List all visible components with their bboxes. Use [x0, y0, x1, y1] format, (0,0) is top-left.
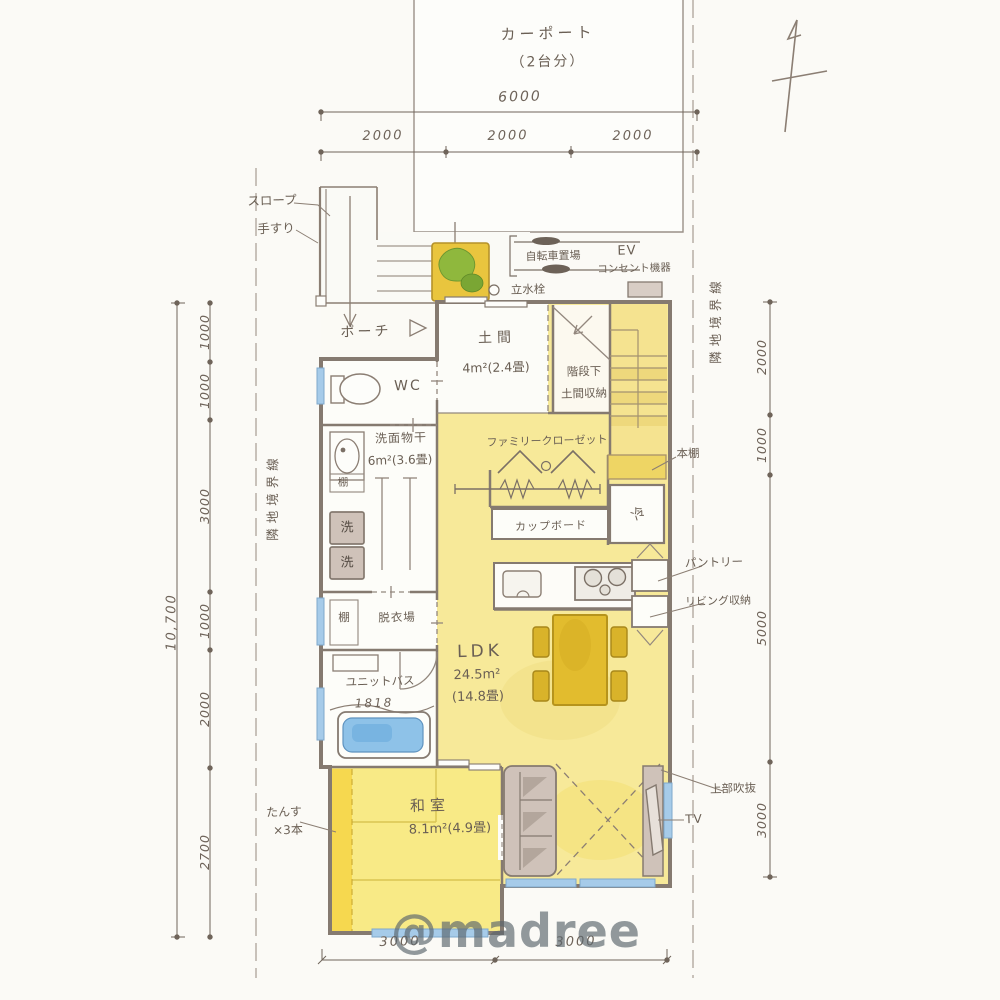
kitchen	[494, 563, 635, 609]
tansu-label-1: たんす	[266, 806, 302, 819]
dim-right-seg: 3000	[756, 802, 769, 838]
washroom-label: 洗面物干	[375, 431, 427, 444]
window	[317, 368, 324, 404]
chair	[611, 627, 627, 657]
standpipe-icon	[489, 285, 499, 295]
family-closet-label: ファミリークローゼット	[486, 434, 607, 448]
chair	[533, 671, 549, 701]
dim-top-seg: 2000	[487, 129, 528, 143]
floor-plan-canvas: カーポート （2台分） 6000 2000 2000 2000 スロープ 手すり…	[0, 0, 1000, 1000]
dim-left-seg: 1000	[199, 603, 212, 639]
kitchen-sink	[503, 571, 541, 597]
dim-left-seg: 3000	[199, 488, 212, 524]
standpipe-label: 立水栓	[511, 284, 546, 296]
dim-right-seg: 1000	[756, 427, 769, 463]
ramp-floor	[320, 187, 377, 303]
window	[506, 879, 576, 887]
unit-bath-label: ユニットバス	[345, 675, 414, 688]
living-storage-box	[632, 596, 668, 627]
toilet-bowl	[340, 374, 380, 404]
dim-left-total: 10,700	[166, 593, 179, 651]
window	[664, 783, 672, 838]
chair	[611, 671, 627, 701]
tansu-strip	[332, 769, 352, 933]
washitsu-area-label: 8.1m²(4.9畳)	[409, 821, 492, 836]
ev-outlet-box	[628, 282, 662, 297]
doma-label: 土間	[478, 331, 516, 346]
dim-left-seg: 2000	[199, 691, 212, 727]
watermark: @madree	[391, 904, 641, 958]
dim-right-seg: 5000	[756, 610, 769, 646]
carport-capacity: （2台分）	[510, 54, 585, 70]
shelf-upper-label: 棚	[338, 478, 349, 489]
handrail-post	[316, 296, 326, 306]
planter	[432, 243, 489, 301]
window	[580, 879, 655, 887]
dim-left-seg: 2700	[199, 834, 212, 870]
bicycle-icon	[542, 265, 570, 274]
window	[317, 598, 324, 645]
dim-right-seg: 2000	[756, 339, 769, 375]
doma-area-label: 4m²(2.4畳)	[462, 361, 530, 375]
dim-left-seg: 1000	[199, 314, 212, 350]
understairs-label-1: 階段下	[567, 366, 602, 378]
ldk-tatami-label: (14.8畳)	[452, 690, 504, 704]
dim-top-seg: 2000	[362, 129, 403, 143]
handrail-label: 手すり	[257, 222, 295, 235]
dim-top-seg: 2000	[612, 129, 653, 143]
wc-fixtures	[331, 374, 380, 404]
tv-label: TV	[685, 813, 703, 825]
understairs-label-2: 土間収納	[561, 388, 607, 401]
tansu-label-2: ×3本	[273, 824, 303, 837]
ldk-area-label: 24.5m²	[453, 668, 500, 682]
room-fills	[320, 187, 670, 935]
floor-plan-drawing	[0, 0, 1000, 1000]
ev-label: EV	[617, 244, 636, 257]
ldk-label: LDK	[457, 643, 503, 661]
boundary-left-label: 隣地境界線	[267, 453, 280, 541]
bookshelf-label: 本棚	[676, 448, 699, 460]
slope-label: スロープ	[247, 194, 297, 208]
north-arrow-icon	[772, 20, 827, 132]
porch-label: ポーチ	[340, 324, 391, 339]
chair	[533, 627, 549, 657]
washitsu-label: 和室	[410, 798, 450, 814]
boundary-right-label: 隣地境界線	[710, 276, 723, 364]
window	[317, 688, 324, 740]
carport-label: カーポート	[500, 25, 595, 42]
burner	[600, 585, 610, 595]
washroom-area-label: 6m²(3.6畳)	[368, 453, 433, 467]
dim-top-total: 6000	[498, 89, 542, 104]
wc-label: WC	[394, 379, 422, 394]
bicycle-icon	[532, 237, 560, 245]
shelf-lower-label: 棚	[338, 612, 350, 624]
dressing-room-label: 脱衣場	[378, 612, 416, 624]
bicycle-parking-label: 自転車置場	[525, 250, 580, 262]
pantry-label: パントリー	[685, 556, 743, 569]
dim-left-seg: 1000	[199, 373, 212, 409]
burner	[585, 570, 602, 587]
doma-floor	[437, 302, 548, 413]
burner	[609, 569, 626, 586]
washer-label: 洗	[340, 556, 353, 569]
pantry-box	[632, 560, 668, 591]
living-storage-label: リビング収納	[685, 595, 751, 608]
unit-bath-size-label: 1818	[355, 696, 394, 709]
ev-outlet-label: コンセント機器	[597, 263, 671, 275]
wash-basin	[335, 439, 359, 473]
cupboard-label: カップボード	[515, 520, 587, 533]
washer-label: 洗	[340, 521, 353, 534]
void-above-label: 上部吹抜	[710, 783, 756, 796]
